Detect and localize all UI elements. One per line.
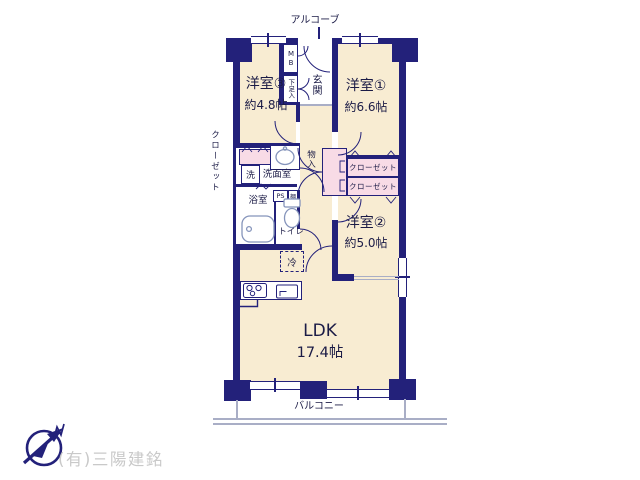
- washroom-label: 洗面室: [254, 170, 300, 181]
- storage-door-arc-icon: [298, 172, 322, 196]
- alcove-label: アルコーブ: [283, 15, 347, 27]
- toilet-tank-icon: [284, 199, 300, 207]
- room-western2-size: 約5.0帖: [334, 237, 398, 251]
- stove-burner-icon: [250, 291, 254, 295]
- room-ldk-size: 17.4帖: [288, 345, 352, 362]
- western1-door-arc-icon: [338, 132, 361, 155]
- room-ldk-name: LDK: [296, 322, 344, 342]
- toilet-bowl-icon: [285, 209, 300, 228]
- counter-edge-line: [240, 300, 258, 307]
- closet-fold-mark-icon: [242, 146, 268, 152]
- washbasin-tap-icon: [283, 147, 286, 150]
- storage-shelf-mark-icon: [340, 161, 345, 191]
- entrance-door-arc-icon: [304, 46, 330, 72]
- room-western3-size: 約4.8帖: [236, 99, 296, 113]
- shoebox-door-arc-icon: [298, 78, 309, 89]
- closet-fold-mark-icon: [350, 151, 396, 157]
- ldk-door-arc-icon: [306, 246, 332, 272]
- entrance-door-arc-icon: [298, 46, 308, 56]
- storage-monoire-label: 物入: [306, 150, 315, 169]
- shoebox-door-arc-icon: [298, 89, 309, 100]
- company-name: (有)三陽建銘: [58, 446, 164, 470]
- room-western2-name: 洋室②: [334, 215, 398, 231]
- closet-side-label: クローゼット: [210, 130, 219, 193]
- washbasin-icon: [276, 150, 294, 165]
- stove-burner-icon: [256, 285, 261, 290]
- toilet-label: トイレ: [276, 228, 306, 238]
- room-western3-name: 洋室③: [236, 76, 296, 92]
- closet-fold-mark-icon: [350, 197, 396, 203]
- room-western1-size: 約6.6帖: [334, 101, 398, 115]
- stove-burner-icon: [247, 285, 252, 290]
- western3-door-arc-icon: [275, 121, 298, 144]
- entrance-label: 玄関: [310, 74, 320, 96]
- bath-label: 浴室: [238, 196, 278, 207]
- bath-folding-door-icon: [256, 184, 271, 189]
- floor-plan: MB 下足入 洗 PS 棚 クローゼット クローゼット 冷: [0, 0, 640, 480]
- room-western1-name: 洋室①: [334, 78, 398, 94]
- stove-icon: [244, 284, 267, 298]
- balcony-label: バルコニー: [287, 401, 351, 413]
